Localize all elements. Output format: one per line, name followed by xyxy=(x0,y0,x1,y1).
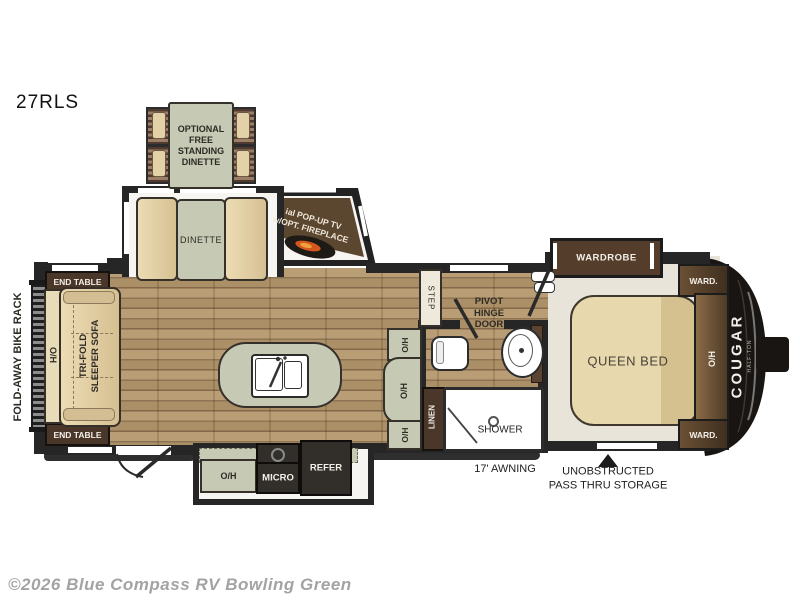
island-sink xyxy=(251,354,309,398)
optional-dinette-table: OPTIONAL FREE STANDING DINETTE xyxy=(168,102,234,189)
optional-dinette-label: OPTIONAL FREE STANDING DINETTE xyxy=(178,124,225,168)
sofa-oh-label: O/H xyxy=(48,347,58,363)
pass-thru-label: UNOBSTRUCTED PASS THRU STORAGE xyxy=(549,466,668,493)
bedroom-step xyxy=(534,282,555,293)
bedroom-overhead: O/H xyxy=(694,293,729,424)
window xyxy=(450,265,508,271)
step: STEP xyxy=(419,269,442,327)
cap-sub-logo: HALF-TON xyxy=(747,340,753,373)
entry-door-opening xyxy=(116,446,171,455)
pivot-door-label: PIVOT HINGE DOOR xyxy=(474,296,504,331)
wardrobe-slideout: WARDROBE xyxy=(550,238,663,278)
bath-sink xyxy=(501,327,544,378)
sink-basin-left xyxy=(255,358,283,391)
dinette-bench-left xyxy=(136,197,178,281)
copyright-text: ©2026 Blue Compass RV Bowling Green xyxy=(8,575,352,595)
toilet xyxy=(431,336,469,371)
faucet-icon xyxy=(519,348,524,353)
dinette-table: DINETTE xyxy=(176,199,226,281)
bike-rack-label: FOLD-AWAY BIKE RACK xyxy=(12,293,24,422)
window xyxy=(68,447,112,453)
cougar-logo: COUGAR xyxy=(729,314,746,399)
shower: SHOWER xyxy=(443,387,544,452)
pass-thru-door xyxy=(597,443,657,449)
hitch-pin-box xyxy=(756,337,789,372)
kitchen-overhead-cabinet: O/H xyxy=(200,459,257,493)
overhead-cabinet: O/H xyxy=(383,357,422,424)
dinette-bench-right xyxy=(224,197,268,281)
linen-label: LINEN xyxy=(428,405,437,429)
microwave: MICRO xyxy=(256,462,300,494)
awning-label: 17' AWNING xyxy=(474,463,536,475)
sink-basin-right xyxy=(284,361,302,389)
window xyxy=(124,202,129,254)
wardrobe-bottom: WARD. xyxy=(678,419,729,450)
queen-bed: QUEEN BED xyxy=(570,295,701,426)
overhead-cabinet: O/H xyxy=(387,420,422,450)
sofa-label: TRI-FOLD SLEEPER SOFA xyxy=(78,320,102,393)
refrigerator: REFER xyxy=(300,440,352,496)
floorplan-page: 27RLS 17' AWNING FOLD- xyxy=(0,0,800,600)
window xyxy=(138,188,174,193)
model-number: 27RLS xyxy=(16,92,79,114)
bedroom-step xyxy=(531,271,555,282)
burner-icon xyxy=(271,448,285,462)
